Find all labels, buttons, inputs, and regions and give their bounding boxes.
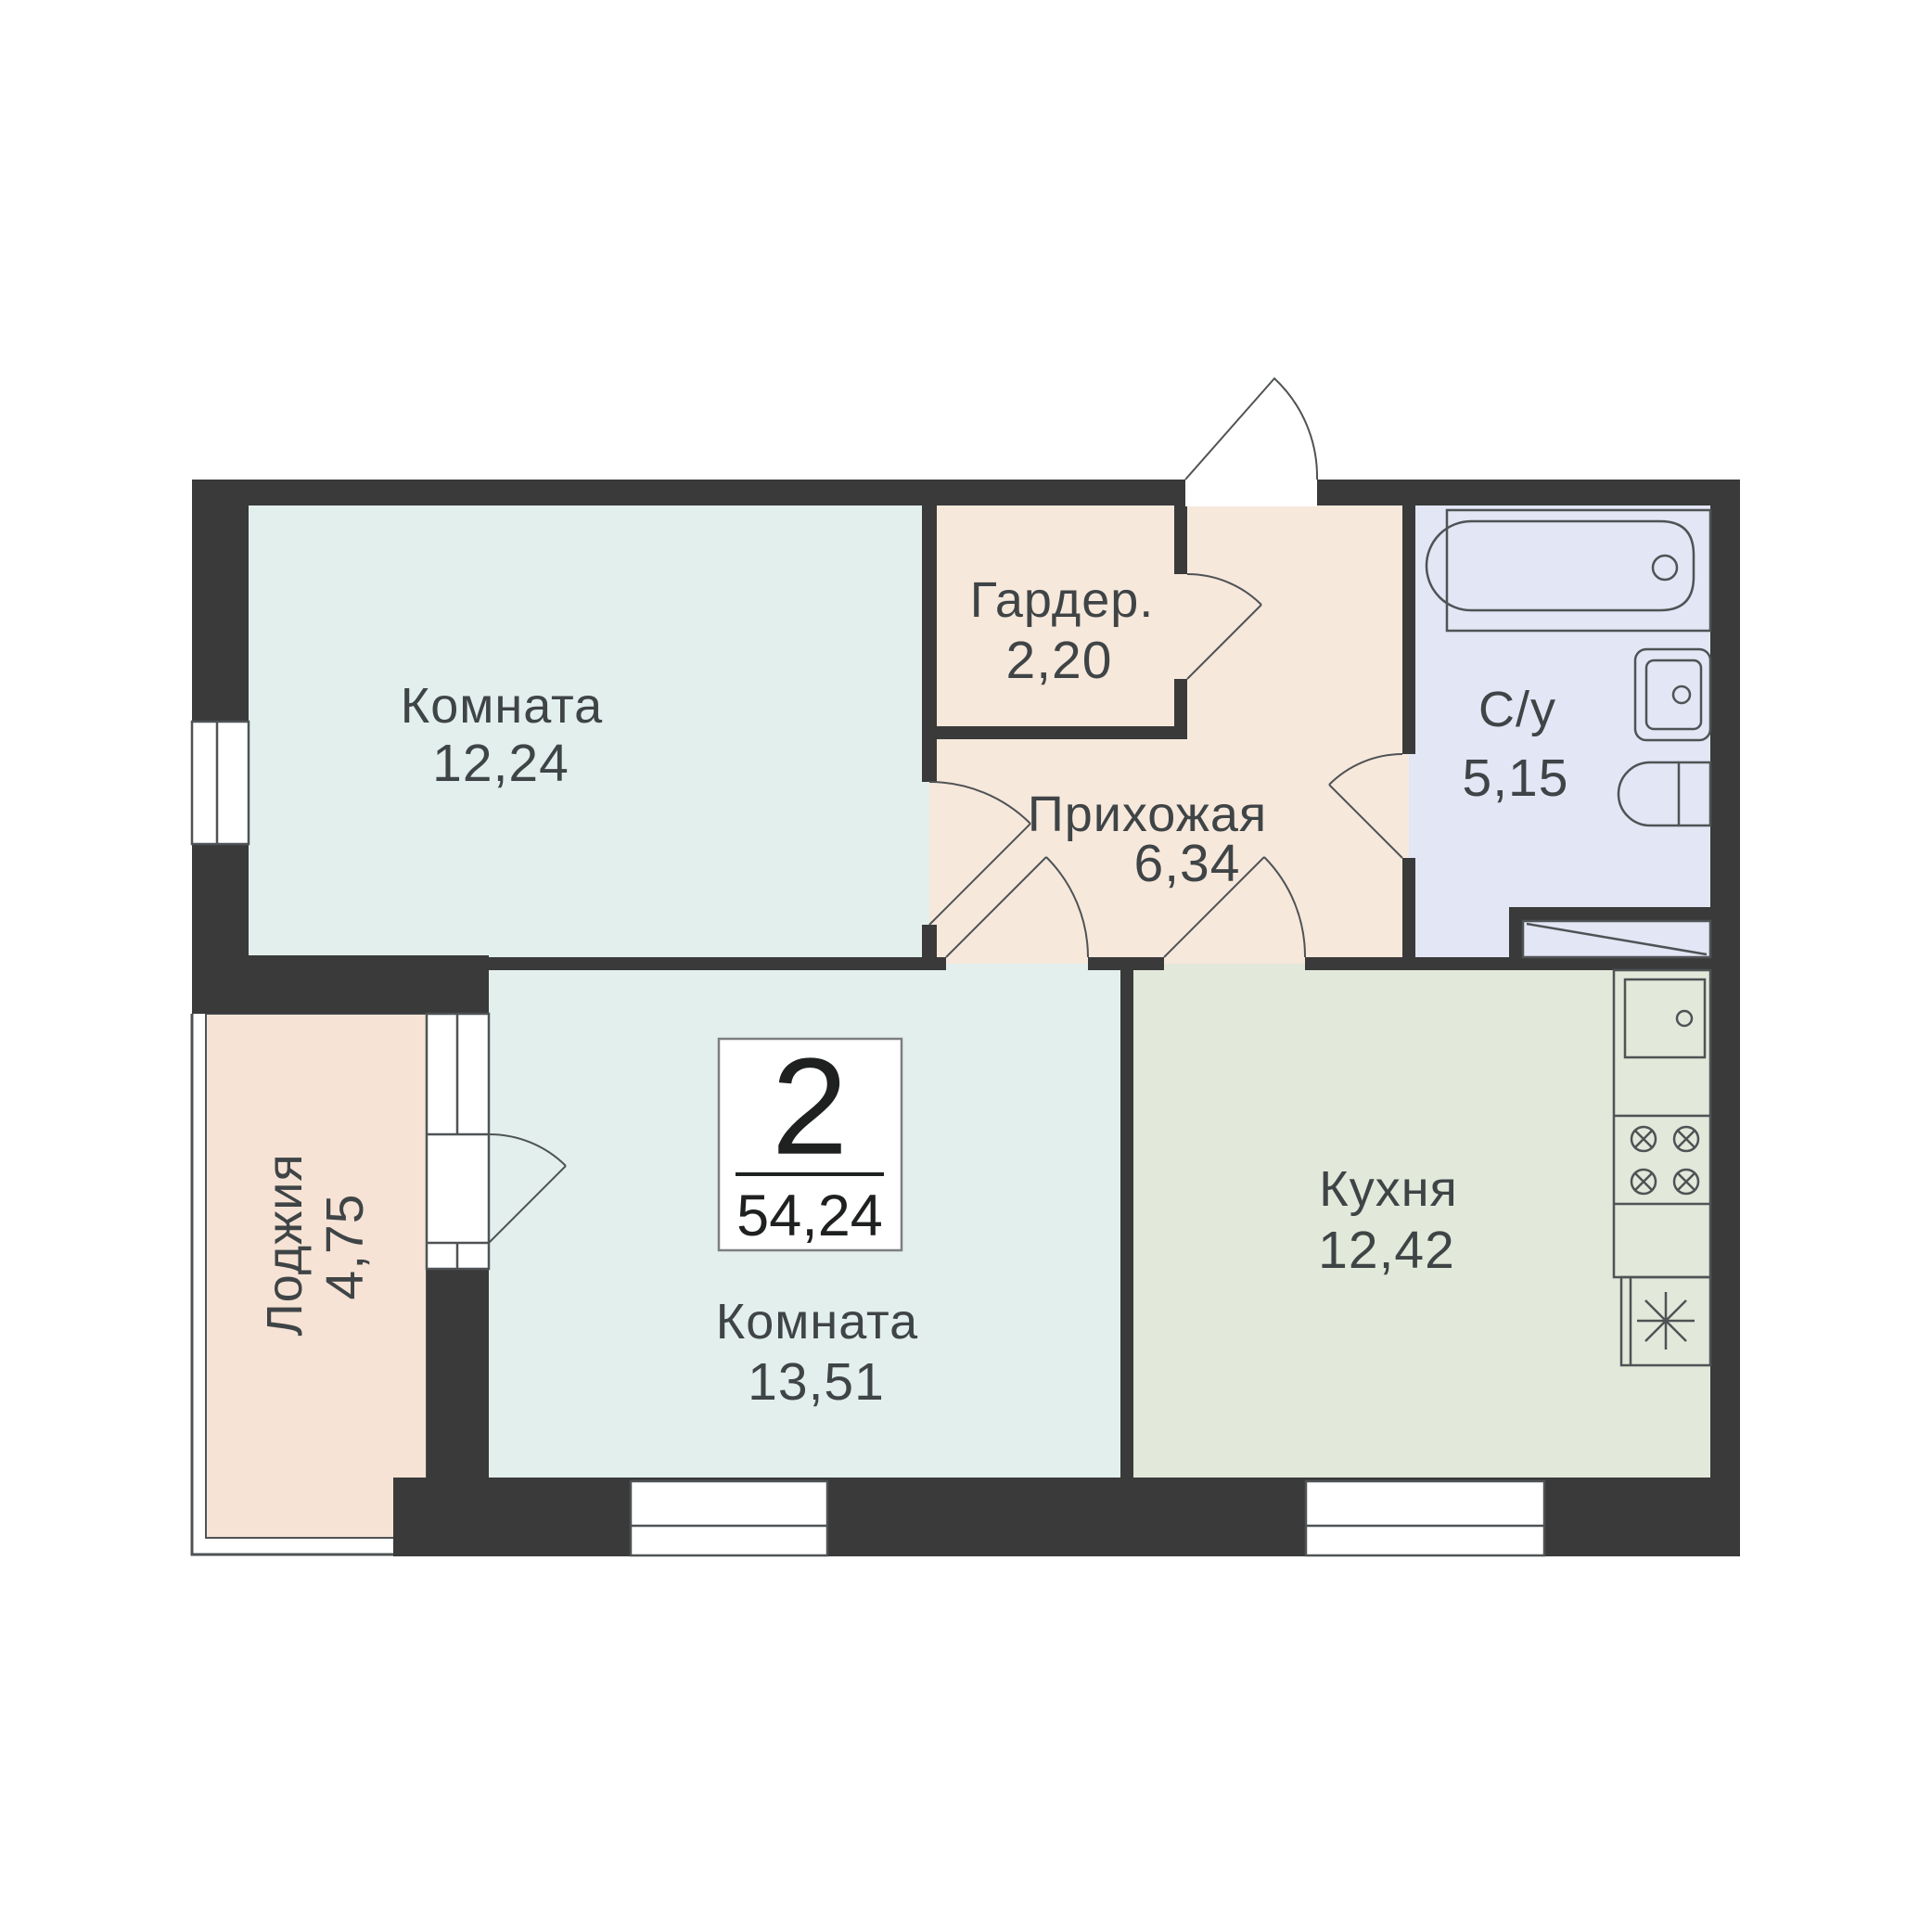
wall-bathroom-stub-h [1509, 907, 1710, 921]
unit-badge: 2 54,24 [719, 1030, 902, 1250]
living2-area: 13,51 [748, 1352, 885, 1412]
room-bathroom-floor [1409, 505, 1710, 964]
window-kitchen-icon [1306, 1481, 1544, 1555]
wall-hall-bathroom-upper [1402, 505, 1415, 754]
floor-plan: Комната 12,24 Гардер. 2,20 Прихожая 6,34… [0, 0, 1932, 1932]
wardrobe-label: Гардер. [970, 572, 1155, 628]
living2-label: Комната [716, 1294, 918, 1350]
living1-area: 12,24 [432, 734, 569, 793]
wall-horizontal-right [1305, 957, 1710, 970]
bathroom-label: С/у [1478, 682, 1556, 737]
wardrobe-area: 2,20 [1006, 631, 1113, 690]
wall-wardrobe-bottom [922, 726, 1187, 739]
wall-living2-kitchen [1120, 970, 1133, 1478]
room-living-1-floor [249, 505, 929, 964]
living1-label: Комната [401, 678, 603, 734]
kitchen-label: Кухня [1319, 1161, 1458, 1217]
floor-plan-canvas: Комната 12,24 Гардер. 2,20 Прихожая 6,34… [0, 0, 1932, 1932]
wall-bathroom-stub-v [1509, 907, 1523, 957]
wall-horizontal-middle [1088, 957, 1164, 970]
wall-right [1710, 480, 1740, 1556]
entrance-door-swing-icon [1185, 378, 1317, 480]
hallway-area: 6,34 [1134, 834, 1241, 893]
wall-block-above-loggia [192, 955, 489, 1014]
wall-hall-bathroom-lower [1402, 858, 1415, 964]
window-living1-icon [192, 722, 249, 844]
loggia-label: Лоджия [257, 1153, 313, 1336]
bathroom-area: 5,15 [1463, 748, 1569, 808]
balcony-door-window-icon [427, 1014, 489, 1269]
kitchen-area: 12,42 [1318, 1221, 1455, 1280]
window-living2-icon [631, 1481, 827, 1555]
wall-top [192, 480, 1740, 505]
duct-panel-icon [1523, 921, 1710, 957]
entrance-opening [1185, 478, 1317, 506]
wall-wardrobe-right-lower [1174, 679, 1187, 739]
unit-badge-total-area: 54,24 [736, 1184, 883, 1248]
wall-living1-hall-upper [922, 505, 937, 782]
wall-living2-left-lower [427, 1269, 489, 1478]
wall-wardrobe-right-upper [1174, 505, 1187, 574]
loggia-area: 4,75 [315, 1194, 375, 1300]
unit-badge-rooms-count: 2 [772, 1030, 848, 1184]
wall-horizontal-left [489, 957, 946, 970]
